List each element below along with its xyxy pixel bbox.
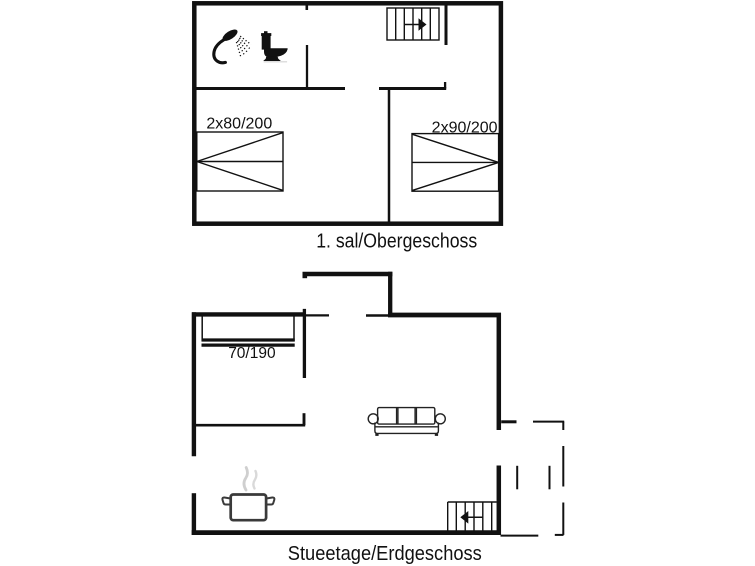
svg-text:2x80/200: 2x80/200 bbox=[206, 115, 272, 132]
svg-text:2x90/200: 2x90/200 bbox=[432, 120, 498, 137]
svg-text:Stueetage/Erdgeschoss: Stueetage/Erdgeschoss bbox=[288, 543, 482, 565]
svg-text:1. sal/Obergeschoss: 1. sal/Obergeschoss bbox=[316, 231, 477, 253]
svg-text:70/190: 70/190 bbox=[228, 345, 276, 362]
